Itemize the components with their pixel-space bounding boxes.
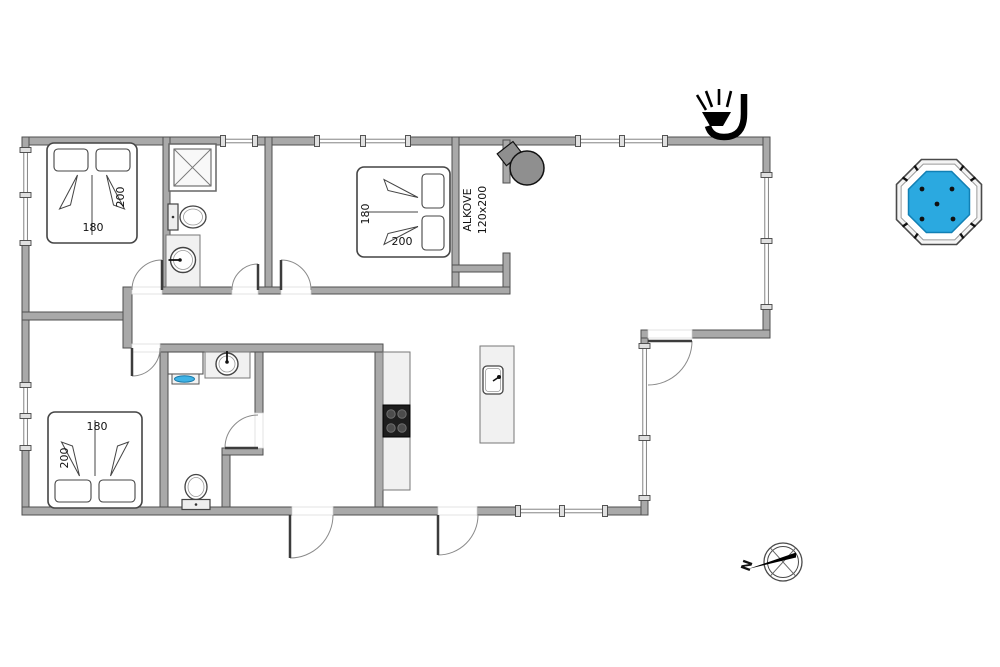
- bed3-length-label: 200: [58, 448, 71, 469]
- tub-jet: [920, 187, 925, 192]
- door-bathroom-1: [232, 264, 258, 294]
- wall: [477, 507, 518, 515]
- burner: [387, 424, 395, 432]
- tub-jet: [935, 202, 940, 207]
- toilet-button: [172, 216, 175, 219]
- window-cap: [20, 446, 31, 451]
- wall: [641, 330, 648, 338]
- door-swing-arc: [290, 515, 333, 558]
- wall: [763, 137, 770, 175]
- door-bathroom-2: [225, 413, 263, 448]
- wall: [333, 507, 438, 515]
- wall: [222, 455, 230, 507]
- door-opening: [132, 344, 160, 352]
- window-pane: [643, 346, 647, 498]
- window-cap: [639, 496, 650, 501]
- cooktop: [383, 405, 410, 437]
- window-cap: [639, 344, 650, 349]
- door-opening: [438, 507, 477, 515]
- lamp-ray: [697, 95, 706, 110]
- door-opening: [132, 287, 162, 294]
- door-swing-arc: [232, 264, 258, 290]
- alcove-size-label: 120x200: [476, 186, 489, 235]
- window-cap: [406, 136, 411, 147]
- window: [20, 383, 31, 451]
- stove-body: [510, 151, 544, 185]
- door-opening: [648, 330, 692, 338]
- kitchen-counter-cooktop: [383, 352, 410, 490]
- window-cap: [761, 173, 772, 178]
- wall: [123, 287, 132, 348]
- door-terrace-south: [438, 507, 478, 555]
- bed2-length-label: 200: [392, 235, 413, 248]
- door-opening: [292, 507, 333, 515]
- tub-jet: [950, 187, 955, 192]
- door-swing-arc: [648, 341, 692, 385]
- door-swing-arc: [225, 415, 258, 448]
- burner: [387, 410, 395, 418]
- bed2-width-label: 180: [359, 204, 372, 225]
- bed3-width-label: 180: [87, 420, 108, 433]
- door-bedroom-2: [281, 260, 311, 294]
- compass-north-label: N: [739, 558, 757, 573]
- bed1-length-label: 200: [114, 187, 127, 208]
- faucet-dot: [225, 360, 229, 364]
- pillow: [422, 216, 444, 250]
- window-cap: [639, 436, 650, 441]
- door-opening: [281, 287, 311, 294]
- burner: [398, 410, 406, 418]
- pillow: [96, 149, 130, 171]
- window-pane: [223, 139, 255, 143]
- window-cap: [516, 506, 521, 517]
- wall: [160, 344, 383, 352]
- door-entrance: [290, 507, 333, 558]
- window-cap: [361, 136, 366, 147]
- vanity-sink: [168, 352, 203, 384]
- window-cap: [761, 305, 772, 310]
- window-cap: [20, 193, 31, 198]
- tub-water: [909, 172, 970, 233]
- pillow: [55, 480, 91, 502]
- outdoor-lamp-icon: [697, 89, 744, 137]
- window-cap: [20, 414, 31, 419]
- window-cap: [560, 506, 565, 517]
- washbasin-bathroom-1: [166, 235, 200, 287]
- wall: [311, 287, 510, 294]
- pillow: [54, 149, 88, 171]
- window: [315, 136, 411, 147]
- toilet-bathroom-2: [182, 475, 210, 510]
- window-cap: [761, 239, 772, 244]
- window: [639, 344, 650, 501]
- wall: [22, 312, 123, 320]
- lamp-ray: [727, 91, 731, 107]
- door-bedroom-3: [132, 344, 160, 376]
- window-cap: [663, 136, 668, 147]
- vanity-cabinet: [168, 352, 203, 374]
- wall: [162, 287, 232, 294]
- toilet-bathroom-1: [168, 204, 206, 230]
- pillow: [99, 480, 135, 502]
- alcove-label: ALKOVE: [461, 188, 474, 231]
- pillow: [422, 174, 444, 208]
- window: [221, 136, 258, 147]
- kitchen-island-sink: [480, 346, 514, 443]
- lamp-ray: [706, 91, 712, 107]
- vanity-blue-sink: [175, 376, 195, 382]
- shower-cabin: [169, 144, 216, 191]
- window-cap: [620, 136, 625, 147]
- window-cap: [20, 383, 31, 388]
- window: [576, 136, 668, 147]
- door-swing-arc: [132, 260, 162, 290]
- floor-plan-svg: 200180180200180200ALKOVE120x200N: [0, 0, 1000, 667]
- hot-tub: [897, 160, 982, 245]
- tub-jet: [920, 217, 925, 222]
- window: [761, 173, 772, 310]
- window-cap: [20, 148, 31, 153]
- wall: [160, 352, 168, 507]
- window: [20, 148, 31, 246]
- wall: [258, 287, 281, 294]
- window: [516, 506, 608, 517]
- wall: [375, 352, 383, 507]
- tub-jet: [951, 217, 956, 222]
- lamp-shade: [702, 112, 731, 126]
- window-cap: [315, 136, 320, 147]
- door-opening: [255, 413, 263, 448]
- wall: [265, 137, 272, 294]
- wall: [255, 137, 317, 145]
- washbasin-bathroom-2: [205, 351, 250, 378]
- burner: [398, 424, 406, 432]
- floorplan-canvas: 200180180200180200ALKOVE120x200N: [0, 0, 1000, 667]
- faucet-dot: [497, 375, 501, 379]
- window-cap: [576, 136, 581, 147]
- toilet-button: [195, 503, 198, 506]
- window-cap: [20, 241, 31, 246]
- wall: [408, 137, 578, 145]
- wall: [22, 448, 29, 515]
- door-opening: [232, 287, 258, 294]
- window-cap: [221, 136, 226, 147]
- compass-rose: [748, 543, 802, 581]
- window-cap: [253, 136, 258, 147]
- wall: [255, 352, 263, 413]
- wall: [452, 265, 510, 272]
- faucet-dot: [178, 258, 182, 262]
- bed1-width-label: 180: [83, 221, 104, 234]
- door-bedroom-1: [132, 260, 162, 294]
- door-terrace-east: [648, 330, 692, 385]
- window-cap: [603, 506, 608, 517]
- door-swing-arc: [281, 260, 311, 290]
- door-swing-arc: [438, 515, 478, 555]
- wall: [692, 330, 770, 338]
